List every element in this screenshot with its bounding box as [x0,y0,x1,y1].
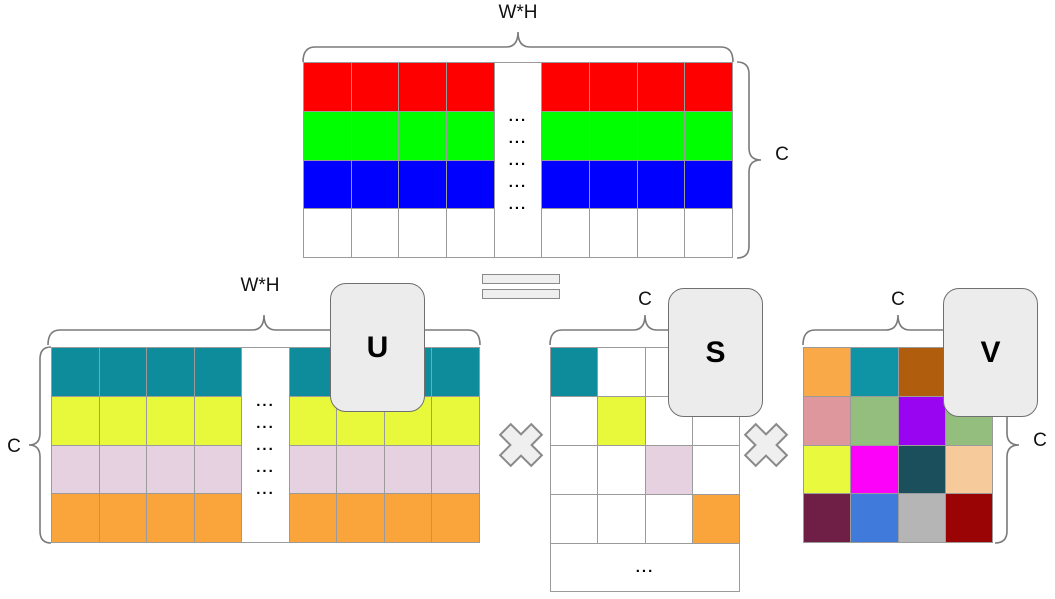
matrix-cell [899,494,945,542]
matrix-cell [638,161,685,209]
matrix-cell [447,209,494,257]
matrix-cell [447,161,494,209]
u-card: U [330,283,425,412]
matrix-cell [693,446,739,494]
matrix-cell [590,63,637,111]
v-height-label: C [1026,430,1054,452]
u-height-label: C [0,436,28,458]
s-ellipsis-row: ... [551,544,739,591]
matrix-cell [551,495,597,543]
matrix-cell [304,161,351,209]
matrix-cell [290,494,337,542]
matrix-cell [551,397,597,445]
matrix-cell [899,397,945,445]
matrix-cell [399,209,446,257]
u-height-brace [29,347,51,543]
matrix-cell [598,348,644,396]
matrix-cell [685,209,732,257]
matrix-cell [590,161,637,209]
matrix-cell [304,209,351,257]
matrix-cell [693,495,739,543]
matrix-cell [52,494,99,542]
matrix-cell [646,446,692,494]
matrix-cell [804,446,850,494]
matrix-cell [147,348,194,396]
matrix-cell [399,161,446,209]
ellipsis: ... [509,154,528,167]
matrix-cell [432,494,479,542]
matrix-cell [100,446,147,494]
matrix-cell [551,446,597,494]
matrix-cell [432,397,479,445]
v-card-label: V [980,336,1000,370]
matrix-cell [352,161,399,209]
matrix-cell [352,112,399,160]
ellipsis-column: ............... [242,348,289,542]
ellipsis: ... [256,439,275,452]
matrix-cell [337,446,384,494]
matrix-cell [590,112,637,160]
matrix-cell [598,495,644,543]
ellipsis: ... [256,483,275,496]
matrix-cell [899,348,945,396]
matrix-cell [100,494,147,542]
matrix-cell [337,494,384,542]
matrix-cell [851,446,897,494]
matrix-cell [399,112,446,160]
matrix-cell [598,446,644,494]
ellipsis: ... [256,417,275,430]
matrix-cell [542,161,589,209]
matrix-cell [385,494,432,542]
matrix-cell [804,494,850,542]
matrix-cell [52,446,99,494]
matrix-cell [851,494,897,542]
multiply-icon [742,421,790,469]
matrix-cell [195,397,242,445]
v-width-label: C [878,289,918,311]
matrix-cell [851,348,897,396]
ellipsis: ... [636,561,655,574]
matrix-cell [432,446,479,494]
matrix-cell [195,348,242,396]
matrix-cell [638,63,685,111]
ellipsis-column: ............... [495,63,542,257]
ellipsis: ... [509,198,528,211]
matrix-cell [542,63,589,111]
matrix-cell [946,446,992,494]
matrix-cell [195,494,242,542]
matrix-cell [542,209,589,257]
multiply-icon [497,421,545,469]
matrix-cell [542,112,589,160]
matrix-cell [304,112,351,160]
matrix-cell [851,397,897,445]
matrix-cell [147,446,194,494]
matrix-cell [290,397,337,445]
matrix-cell [147,494,194,542]
matrix-cell [804,348,850,396]
u-width-label: W*H [230,275,290,297]
matrix-cell [100,397,147,445]
matrix-cell [147,397,194,445]
matrix-cell [899,446,945,494]
matrix-cell [52,397,99,445]
ellipsis: ... [256,461,275,474]
matrix-cell [195,446,242,494]
matrix-cell [646,495,692,543]
matrix-cell [946,494,992,542]
matrix-cell [590,209,637,257]
matrix-cell [447,112,494,160]
original-matrix: ............... [303,62,733,258]
matrix-cell [352,63,399,111]
u-card-label: U [367,331,389,365]
original-width-label: W*H [488,2,548,24]
s-card-label: S [705,336,725,370]
matrix-cell [804,397,850,445]
matrix-cell [52,348,99,396]
matrix-cell [685,63,732,111]
matrix-cell [432,348,479,396]
original-width-brace [303,32,733,62]
ellipsis: ... [256,395,275,408]
v-card: V [943,288,1038,417]
matrix-cell [385,446,432,494]
matrix-cell [638,209,685,257]
matrix-cell [551,348,597,396]
ellipsis: ... [509,132,528,145]
ellipsis: ... [509,176,528,189]
original-height-label: C [768,144,796,166]
matrix-cell [638,112,685,160]
ellipsis: ... [509,110,528,123]
matrix-cell [290,446,337,494]
matrix-cell [685,161,732,209]
matrix-cell [100,348,147,396]
svd-diagram: W*H ............... C W*H C ............… [0,0,1055,599]
original-height-brace [737,62,761,258]
matrix-cell [399,63,446,111]
matrix-cell [598,397,644,445]
matrix-cell [685,112,732,160]
s-card: S [668,288,763,417]
matrix-cell [447,63,494,111]
s-width-label: C [625,289,665,311]
matrix-cell [352,209,399,257]
matrix-cell [304,63,351,111]
